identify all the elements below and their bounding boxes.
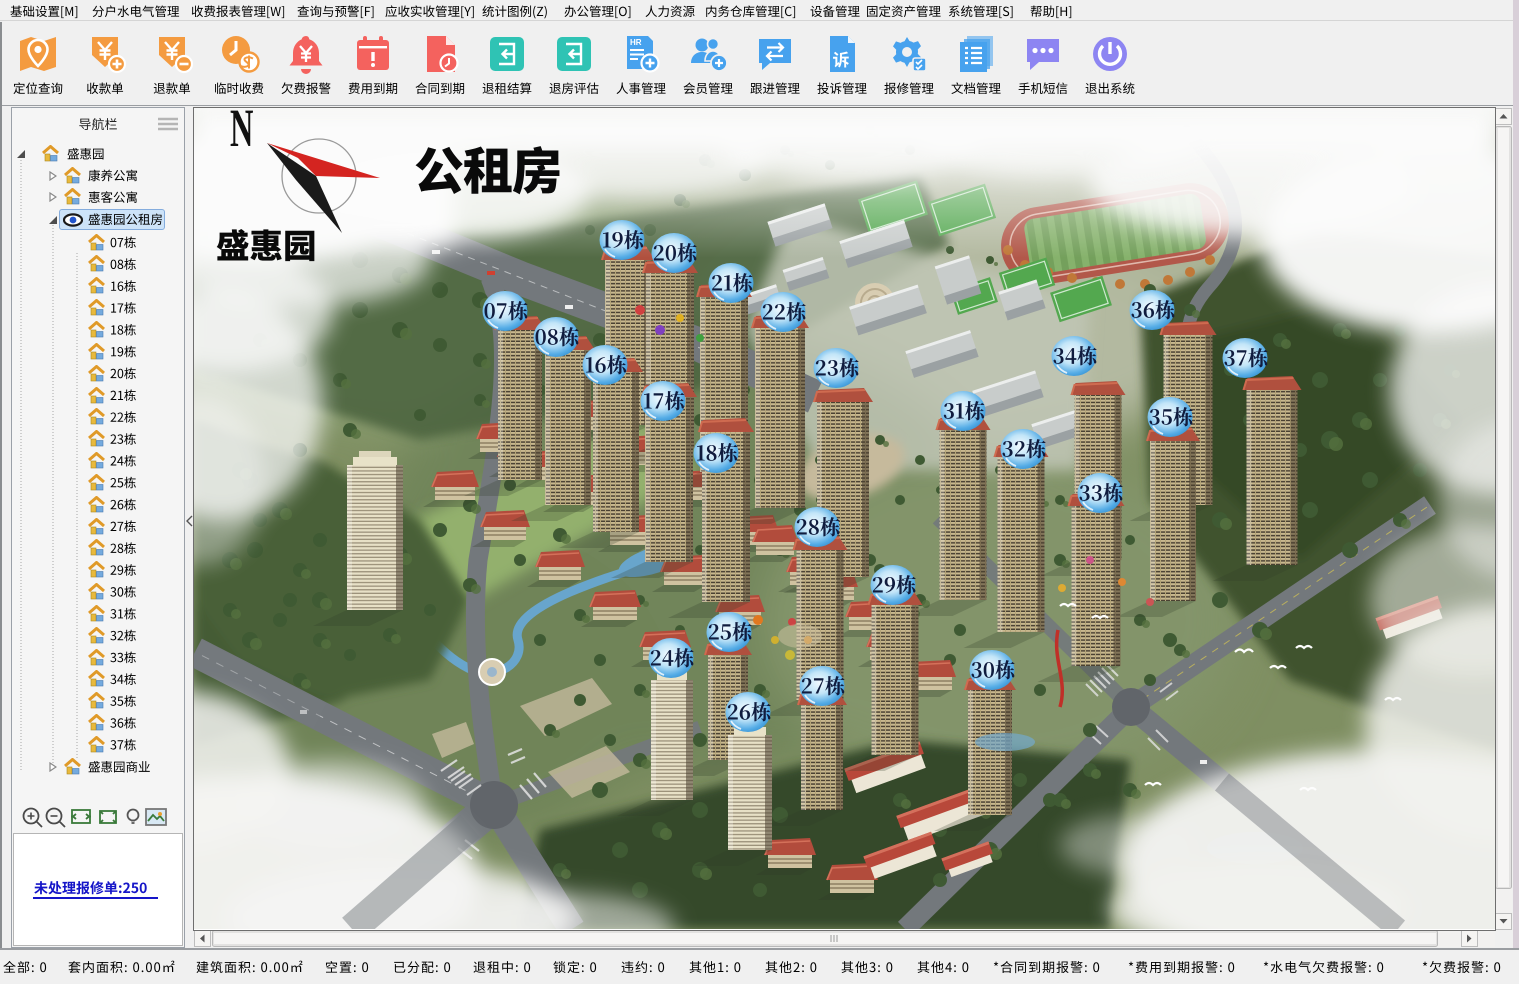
- svg-text:HR: HR: [630, 38, 642, 47]
